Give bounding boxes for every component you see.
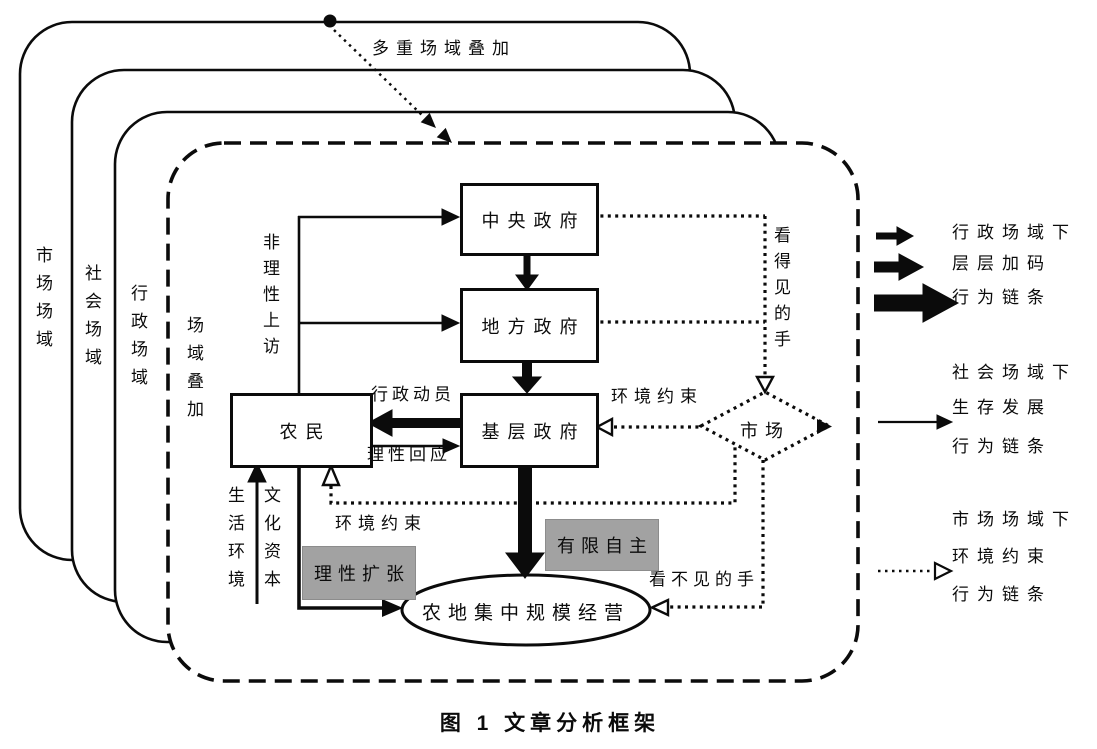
legend-arrow-admin-medium [874, 254, 923, 280]
legend-arrow-admin-small [876, 227, 913, 245]
label-env-constraint-market: 环境约束 [611, 388, 703, 407]
legend-social-line-1: 社会场域下 [952, 364, 1077, 381]
label-cultural-capital: 文化资本 [262, 486, 279, 598]
node-local-government-label: 地方政府 [474, 313, 586, 339]
node-central-government: 中央政府 [460, 183, 599, 256]
limited-autonomy-label: 有限自主 [551, 532, 653, 558]
node-farmers-label: 农民 [272, 418, 332, 444]
node-central-government-label: 中央政府 [474, 207, 586, 233]
legend-market-line-3: 行为链条 [952, 586, 1052, 603]
label-admin-mobilization: 行政动员 [371, 386, 455, 405]
rational-expansion-label: 理性扩张 [308, 560, 410, 586]
legend-arrow-market-dotted [878, 563, 951, 579]
legend-market-line-2: 环境约束 [952, 548, 1052, 565]
field-label-social: 社会场域 [83, 264, 100, 376]
highlight-limited-autonomy: 有限自主 [545, 519, 659, 571]
diagram-canvas [0, 0, 1097, 749]
label-rational-response: 理性回应 [367, 446, 451, 465]
field-label-market: 市场场域 [34, 246, 51, 358]
field-label-overlay: 场域叠加 [185, 316, 202, 428]
node-grassroots-government-label: 基层政府 [474, 418, 586, 444]
label-env-constraint-social: 环境约束 [335, 515, 427, 534]
legend-social-line-2: 生存发展 [952, 399, 1052, 416]
node-local-government: 地方政府 [460, 288, 599, 363]
legend-admin-line-3: 行为链条 [952, 289, 1052, 306]
label-visible-hand: 看得见的手 [772, 226, 789, 356]
label-invisible-hand: 看不见的手 [649, 571, 759, 590]
legend-admin-line-1: 行政场域下 [952, 224, 1077, 241]
overlay-origin-dot [324, 15, 337, 28]
node-land-operation-label: 农地集中规模经营 [402, 598, 650, 625]
label-irrational-petition: 非理性上访 [261, 233, 278, 363]
legend-admin-line-2: 层层加码 [952, 255, 1052, 272]
label-living-environment: 生活环境 [226, 486, 243, 598]
legend-arrow-admin-large [874, 284, 958, 322]
highlight-rational-expansion: 理性扩张 [302, 546, 416, 600]
legend-arrows [874, 227, 958, 579]
node-market-label: 市场 [713, 417, 817, 443]
node-grassroots-government: 基层政府 [460, 393, 599, 468]
figure-caption: 图 1 文章分析框架 [360, 707, 740, 737]
legend-social-line-3: 行为链条 [952, 438, 1052, 455]
label-multi-field-overlay: 多重场域叠加 [372, 40, 516, 59]
node-farmers: 农民 [230, 393, 373, 468]
field-label-admin: 行政场域 [129, 284, 146, 396]
figure-analysis-framework: 中央政府 地方政府 基层政府 农民 有限自主 理性扩张 市场 农地集中规模经营 … [0, 0, 1097, 749]
legend-arrow-social-thin [878, 415, 952, 429]
legend-market-line-1: 市场场域下 [952, 511, 1077, 528]
